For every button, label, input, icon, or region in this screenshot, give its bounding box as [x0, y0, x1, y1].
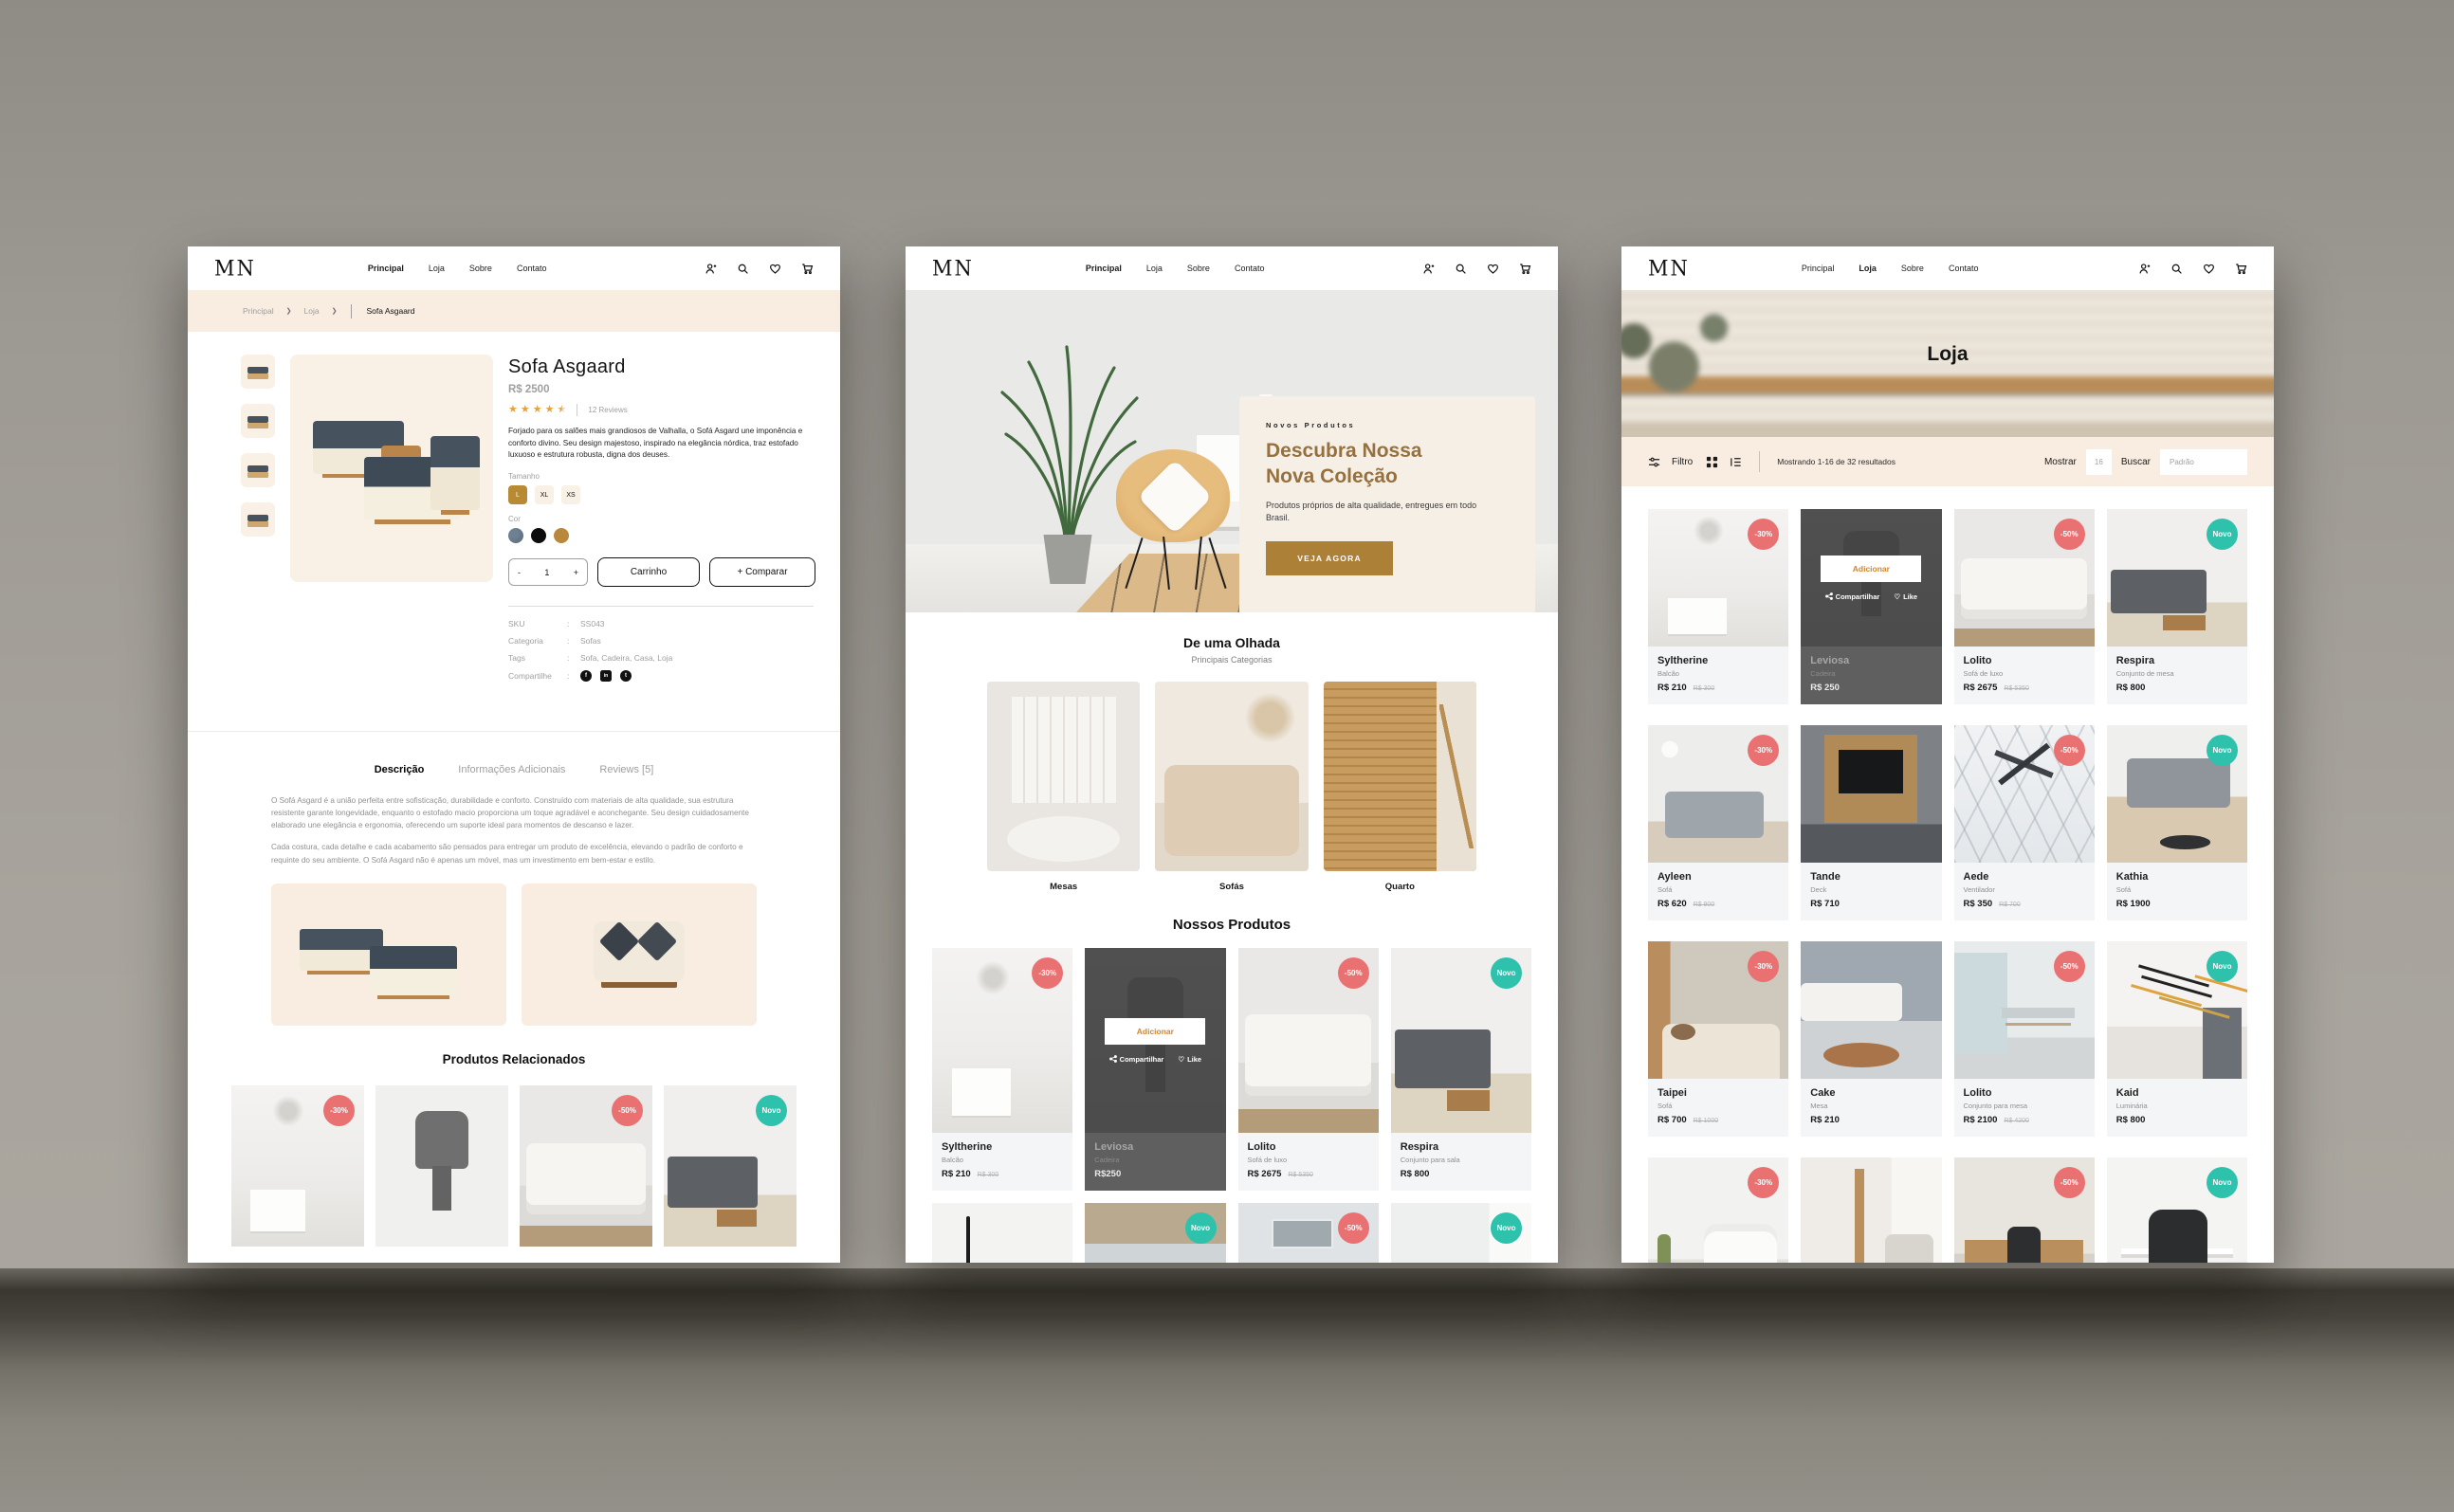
discount-badge: -50% — [1338, 957, 1369, 989]
category-quarto[interactable]: Quarto — [1324, 682, 1476, 892]
product-name: Cake — [1810, 1087, 1932, 1099]
chevron-icon: ❯ — [332, 307, 338, 315]
search-icon[interactable] — [737, 263, 749, 275]
related-product-1[interactable]: -30% — [231, 1085, 364, 1247]
main-nav: Principal Loja Sobre Contato — [368, 264, 547, 273]
product-name: Leviosa — [1094, 1141, 1216, 1153]
product-card[interactable]: Novo — [1391, 1203, 1531, 1263]
main-nav: Principal Loja Sobre Contato — [1086, 264, 1265, 273]
purchase-actions: - 1 + Carrinho + Comparar — [508, 557, 815, 587]
discount-badge: -30% — [1748, 735, 1779, 766]
grid-view-icon[interactable] — [1706, 456, 1718, 468]
product-old-price: R$ 1000 — [1694, 1118, 1718, 1124]
section-divider — [188, 731, 840, 732]
discount-badge: -50% — [2054, 519, 2085, 550]
account-icon[interactable] — [1422, 263, 1435, 275]
product-category: Sofá — [2116, 885, 2238, 894]
product-category: Luminária — [2116, 1102, 2238, 1110]
tab-informacoes[interactable]: Informações Adicionais — [458, 764, 565, 775]
category-image — [1155, 682, 1308, 871]
product-category: Sofá de luxo — [1964, 669, 2085, 678]
toolbar-divider — [1759, 451, 1760, 472]
product-image: Novo — [1391, 1203, 1531, 1263]
product-name: Respira — [1401, 1141, 1522, 1153]
product-card-hovered[interactable]: Adicionar Compartilhar ♡Like Leviosa Cad… — [1085, 948, 1225, 1191]
home-page: MN Principal Loja Sobre Contato — [906, 246, 1558, 1263]
product-detail-page: MN Principal Loja Sobre Contato Principa… — [188, 246, 840, 1263]
heart-icon: ♡ — [1178, 1055, 1184, 1064]
twitter-icon[interactable]: t — [620, 670, 632, 682]
new-badge: Novo — [2207, 519, 2238, 550]
product-image: -50% — [1954, 941, 2095, 1079]
share-label: Compartilhe — [508, 671, 567, 681]
product-card[interactable]: -30% Syltherine Balcão R$ 210 R$ 300 — [1648, 509, 1788, 704]
tags-label: Tags — [508, 653, 567, 663]
size-option-l[interactable]: L — [508, 485, 527, 504]
color-swatch-tan[interactable] — [554, 528, 569, 543]
discount-badge: -50% — [2054, 735, 2085, 766]
product-title: Sofa Asgaard — [508, 356, 815, 378]
site-header: MN Principal Loja Sobre Contato — [1621, 246, 2274, 290]
discount-badge: -50% — [2054, 1167, 2085, 1198]
product-price: R$ 620 — [1657, 899, 1687, 909]
discount-badge: -30% — [1748, 1167, 1779, 1198]
size-label: Tamanho — [508, 472, 815, 481]
product-meta: SKU : SS043 Categoria : Sofas Tags : Sof… — [508, 619, 815, 682]
home-product-grid-partial: Novo -50% Novo — [932, 1203, 1531, 1263]
main-nav: Principal Loja Sobre Contato — [1802, 264, 1979, 273]
product-card[interactable]: Novo Respira Conjunto de mesa R$ 800 — [2107, 509, 2247, 704]
discount-badge: -30% — [1032, 957, 1063, 989]
product-old-price: R$ 4200 — [2004, 1118, 2028, 1124]
like-action[interactable]: ♡Like — [1894, 592, 1917, 601]
product-old-price: R$ 5350 — [2004, 685, 2028, 692]
product-price: R$ 710 — [1810, 899, 1840, 909]
products-title: Nossos Produtos — [906, 917, 1558, 933]
list-view-icon[interactable] — [1730, 456, 1742, 468]
hero-cta-button[interactable]: VEJA AGORA — [1266, 541, 1393, 575]
sku-label: SKU — [508, 619, 567, 628]
related-product-3[interactable]: -50% — [520, 1085, 652, 1247]
shop-product-grid-partial: -30% -50% Novo — [1648, 1157, 2247, 1263]
category-label: Sofás — [1155, 882, 1308, 892]
tags-value[interactable]: Sofa, Cadeira, Casa, Loja — [580, 653, 672, 663]
product-image: -50% — [1954, 725, 2095, 863]
product-old-price: R$ 300 — [1694, 685, 1715, 692]
product-image — [1801, 1157, 1941, 1263]
breadcrumb-home[interactable]: Principal — [243, 306, 274, 316]
product-card[interactable]: Novo — [1085, 1203, 1225, 1263]
rattan-chair-graphic — [1116, 449, 1230, 592]
size-option-xs[interactable]: XS — [561, 485, 580, 504]
wishlist-heart-icon[interactable] — [769, 263, 781, 275]
thumbnail-3[interactable] — [241, 453, 275, 487]
product-name: Respira — [2116, 655, 2238, 666]
wishlist-heart-icon[interactable] — [2203, 263, 2215, 275]
nav-contato[interactable]: Contato — [517, 264, 547, 273]
new-badge: Novo — [756, 1095, 787, 1126]
product-category: Conjunto para sala — [1401, 1156, 1522, 1164]
like-action[interactable]: ♡Like — [1178, 1055, 1201, 1064]
discount-badge: -50% — [1338, 1212, 1369, 1244]
star-icon: ★ — [533, 405, 542, 415]
account-icon[interactable] — [2138, 263, 2151, 275]
header-icons — [2138, 263, 2247, 275]
compare-button[interactable]: + Comparar — [709, 557, 815, 587]
thumbnail-2[interactable] — [241, 404, 275, 438]
info-divider — [508, 606, 814, 607]
category-label: Categoria — [508, 636, 567, 646]
new-badge: Novo — [1491, 1212, 1522, 1244]
product-card[interactable]: -30% Syltherine Balcão R$ 210 R$ 300 — [932, 948, 1072, 1191]
color-swatch-blue[interactable] — [508, 528, 523, 543]
product-card[interactable] — [1801, 1157, 1941, 1263]
shop-product-grid: -30% Syltherine Balcão R$ 210 R$ 300 Adi… — [1648, 509, 2247, 1137]
brand-logo[interactable]: MN — [1648, 256, 1690, 280]
product-category: Balcão — [942, 1156, 1063, 1164]
rating-divider — [577, 404, 577, 416]
share-action[interactable]: Compartilhar — [1109, 1055, 1164, 1064]
scene-floor — [0, 1268, 2454, 1512]
product-category: Sofá — [1657, 1102, 1779, 1110]
linkedin-icon[interactable]: in — [600, 670, 612, 682]
product-card[interactable]: Novo Kathia Sofá R$ 1900 — [2107, 725, 2247, 920]
hero-banner: Novos Produtos Descubra Nossa Nova Coleç… — [906, 290, 1558, 612]
product-card[interactable]: -30% Ayleen Sofá R$ 620 R$ 900 — [1648, 725, 1788, 920]
sort-label: Buscar — [2121, 457, 2151, 467]
product-card[interactable]: -30% Taipei Sofá R$ 700 R$ 1000 — [1648, 941, 1788, 1137]
nav-contato[interactable]: Contato — [1949, 264, 1979, 273]
product-image: -50% — [1954, 509, 2095, 647]
quantity-minus[interactable]: - — [518, 568, 521, 577]
star-icon: ★ — [545, 405, 555, 415]
product-card[interactable]: Novo Respira Conjunto para sala R$ 800 — [1391, 948, 1531, 1191]
product-image: Novo — [1085, 1203, 1225, 1263]
product-price: R$ 250 — [1810, 683, 1840, 693]
heart-icon: ♡ — [1894, 592, 1900, 601]
product-image: -30% — [1648, 725, 1788, 863]
product-image: Novo — [2107, 725, 2247, 863]
product-card[interactable]: Tande Deck R$ 710 — [1801, 725, 1941, 920]
add-to-cart-button[interactable]: Adicionar — [1821, 556, 1921, 582]
brand-logo[interactable]: MN — [214, 256, 256, 280]
product-price: R$ 2675 — [1964, 683, 1998, 693]
product-info: Sofa Asgaard R$ 2500 ★ ★ ★ ★ ★ 12 Review… — [508, 355, 815, 689]
product-image: -50% — [1954, 1157, 2095, 1263]
nav-loja[interactable]: Loja — [1146, 264, 1163, 273]
size-option-xl[interactable]: XL — [535, 485, 554, 504]
quantity-stepper[interactable]: - 1 + — [508, 558, 588, 586]
facebook-icon[interactable]: f — [580, 670, 592, 682]
product-price: R$ 800 — [1401, 1169, 1430, 1179]
category-label: Quarto — [1324, 882, 1476, 892]
discount-badge: -30% — [323, 1095, 355, 1126]
product-category: Conjunto de mesa — [2116, 669, 2238, 678]
header-icons — [705, 263, 814, 275]
show-count-input[interactable]: 16 — [2086, 449, 2112, 475]
product-image — [1801, 941, 1941, 1079]
breadcrumb-current: Sofa Asgaard — [366, 306, 414, 316]
add-to-cart-button[interactable]: Carrinho — [597, 557, 700, 587]
new-badge: Novo — [2207, 1167, 2238, 1198]
shop-hero-banner: Loja — [1621, 290, 2274, 437]
new-badge: Novo — [2207, 951, 2238, 982]
breadcrumb-divider — [351, 304, 352, 319]
site-header: MN Principal Loja Sobre Contato — [906, 246, 1558, 290]
mockup-scene: MN Principal Loja Sobre Contato Principa… — [0, 0, 2454, 1512]
cart-icon[interactable] — [2235, 263, 2247, 275]
glance-section-header: De uma Olhada Principais Categorias — [906, 635, 1558, 665]
discount-badge: -50% — [612, 1095, 643, 1126]
product-image: Novo — [2107, 941, 2247, 1079]
description-body: O Sofá Asgard é a união perfeita entre s… — [271, 794, 757, 866]
product-category: Cadeira — [1094, 1156, 1216, 1164]
product-image: Adicionar Compartilhar ♡Like — [1801, 509, 1941, 647]
shop-page: MN Principal Loja Sobre Contato Loja Fil… — [1621, 246, 2274, 1263]
thumbnail-1[interactable] — [241, 355, 275, 389]
category-sofas[interactable]: Sofás — [1155, 682, 1308, 892]
product-name: Aede — [1964, 871, 2085, 883]
description-paragraph: O Sofá Asgard é a união perfeita entre s… — [271, 794, 757, 831]
star-icon: ★ — [521, 405, 530, 415]
product-price: R$ 700 — [1657, 1115, 1687, 1125]
product-card[interactable]: -50% Lolito Conjunto para mesa R$ 2100 R… — [1954, 941, 2095, 1137]
product-card[interactable]: -50% Lolito Sofá de luxo R$ 2675 R$ 5350 — [1238, 948, 1379, 1191]
product-category: Cadeira — [1810, 669, 1932, 678]
product-category: Sofá de luxo — [1248, 1156, 1369, 1164]
nav-sobre[interactable]: Sobre — [469, 264, 492, 273]
product-name: Leviosa — [1810, 655, 1932, 666]
cart-icon[interactable] — [801, 263, 814, 275]
product-price: R$ 2675 — [1248, 1169, 1282, 1179]
product-price: R$ 800 — [2116, 1115, 2146, 1125]
breadcrumb: Principal ❯ Loja ❯ Sofa Asgaard — [188, 290, 840, 332]
detail-tabs: Descrição Informações Adicionais Reviews… — [188, 764, 840, 775]
product-card[interactable]: Novo Kaid Luminária R$ 800 — [2107, 941, 2247, 1137]
hero-card: Novos Produtos Descubra Nossa Nova Coleç… — [1239, 396, 1535, 612]
product-image — [932, 1203, 1072, 1263]
product-price: R$ 2100 — [1964, 1115, 1998, 1125]
glance-subtitle: Principais Categorias — [906, 655, 1558, 665]
shop-toolbar: Filtro Mostrando 1-16 de 32 resultados M… — [1621, 437, 2274, 486]
new-badge: Novo — [2207, 735, 2238, 766]
category-label: Mesas — [987, 882, 1140, 892]
description-images — [271, 884, 757, 1026]
hero-title: Descubra Nossa Nova Coleção — [1266, 438, 1509, 490]
product-summary: Forjado para os salões mais grandiosos d… — [508, 426, 814, 462]
hero-eyebrow: Novos Produtos — [1266, 421, 1509, 429]
product-card[interactable]: Cake Mesa R$ 210 — [1801, 941, 1941, 1137]
product-main-image — [290, 355, 493, 582]
product-card[interactable]: Novo — [2107, 1157, 2247, 1263]
discount-badge: -50% — [2054, 951, 2085, 982]
nav-sobre[interactable]: Sobre — [1901, 264, 1924, 273]
product-card[interactable]: -50% — [1954, 1157, 2095, 1263]
size-options: L XL XS — [508, 485, 815, 504]
product-section: Sofa Asgaard R$ 2500 ★ ★ ★ ★ ★ 12 Review… — [188, 332, 840, 689]
product-image: Novo — [1391, 948, 1531, 1133]
product-price: R$ 210 — [1810, 1115, 1840, 1125]
nav-sobre[interactable]: Sobre — [1187, 264, 1210, 273]
product-category: Sofá — [1657, 885, 1779, 894]
hero-text: Produtos próprios de alta qualidade, ent… — [1266, 500, 1493, 525]
hover-overlay: Adicionar Compartilhar ♡Like — [1085, 948, 1225, 1133]
sort-select[interactable]: Padrão — [2160, 449, 2247, 475]
product-old-price: R$ 700 — [1999, 902, 2021, 908]
product-category: Ventilador — [1964, 885, 2085, 894]
product-old-price: R$ 5350 — [1288, 1172, 1312, 1178]
product-price: R$ 800 — [2116, 683, 2146, 693]
breadcrumb-shop[interactable]: Loja — [303, 306, 319, 316]
half-star-icon: ★ — [558, 405, 567, 415]
product-price: R$ 210 — [1657, 683, 1687, 693]
related-product-2[interactable] — [375, 1085, 508, 1247]
product-image: -50% — [1238, 1203, 1379, 1263]
category-row: Mesas Sofás Quarto — [987, 682, 1476, 892]
nav-principal[interactable]: Principal — [1802, 264, 1835, 273]
thumbnail-list — [241, 355, 275, 689]
product-price: R$ 2500 — [508, 384, 815, 395]
product-card[interactable]: -50% Aede Ventilador R$ 350 R$ 700 — [1954, 725, 2095, 920]
discount-badge: -30% — [1748, 951, 1779, 982]
thumbnail-4[interactable] — [241, 502, 275, 537]
product-category: Deck — [1810, 885, 1932, 894]
search-icon[interactable] — [1455, 263, 1467, 275]
new-badge: Novo — [1185, 1212, 1217, 1244]
color-swatch-black[interactable] — [531, 528, 546, 543]
description-image-sofa-set — [271, 884, 506, 1026]
product-name: Lolito — [1964, 1087, 2085, 1099]
product-price: R$ 350 — [1964, 899, 1993, 909]
product-name: Kathia — [2116, 871, 2238, 883]
review-count[interactable]: 12 Reviews — [588, 406, 627, 414]
product-name: Ayleen — [1657, 871, 1779, 883]
product-image: -30% — [1648, 509, 1788, 647]
description-paragraph: Cada costura, cada detalhe e cada acabam… — [271, 841, 757, 865]
category-mesas[interactable]: Mesas — [987, 682, 1140, 892]
product-image: Novo — [2107, 509, 2247, 647]
tab-reviews[interactable]: Reviews [5] — [599, 764, 653, 775]
products-section-header: Nossos Produtos — [906, 917, 1558, 933]
product-image — [1801, 725, 1941, 863]
product-card[interactable] — [932, 1203, 1072, 1263]
show-label: Mostrar — [2044, 457, 2077, 467]
rating: ★ ★ ★ ★ ★ 12 Reviews — [508, 404, 815, 416]
product-old-price: R$ 900 — [1694, 902, 1715, 908]
shop-page-title: Loja — [1621, 290, 2274, 366]
site-header: MN Principal Loja Sobre Contato — [188, 246, 840, 290]
cart-icon[interactable] — [1519, 263, 1531, 275]
product-image: Novo — [2107, 1157, 2247, 1263]
discount-badge: -30% — [1748, 519, 1779, 550]
account-icon[interactable] — [705, 263, 717, 275]
product-price: R$250 — [1094, 1169, 1121, 1179]
search-icon[interactable] — [2170, 263, 2183, 275]
product-image: -50% — [1238, 948, 1379, 1133]
chevron-icon: ❯ — [286, 307, 292, 315]
star-icon: ★ — [508, 405, 518, 415]
filter-label[interactable]: Filtro — [1672, 457, 1693, 467]
product-card[interactable]: -50% — [1238, 1203, 1379, 1263]
product-price: R$ 1900 — [2116, 899, 2151, 909]
related-products: Produtos Relacionados -30% -50% Novo — [188, 1052, 840, 1247]
product-name: Kaid — [2116, 1087, 2238, 1099]
product-name: Lolito — [1964, 655, 2085, 666]
product-old-price: R$ 300 — [978, 1172, 999, 1178]
product-category: Conjunto para mesa — [1964, 1102, 2085, 1110]
category-image — [1324, 682, 1476, 871]
glance-title: De uma Olhada — [906, 635, 1558, 650]
product-category: Balcão — [1657, 669, 1779, 678]
quantity-value: 1 — [544, 568, 549, 577]
description-image-armchair — [522, 884, 757, 1026]
product-card[interactable]: -50% Lolito Sofá de luxo R$ 2675 R$ 5350 — [1954, 509, 2095, 704]
share-action[interactable]: Compartilhar — [1825, 592, 1880, 601]
nav-loja[interactable]: Loja — [429, 264, 445, 273]
product-image: -30% — [932, 948, 1072, 1133]
product-image: Adicionar Compartilhar ♡Like — [1085, 948, 1225, 1133]
sku-value: SS043 — [580, 619, 605, 628]
nav-principal[interactable]: Principal — [1086, 264, 1122, 273]
related-title: Produtos Relacionados — [188, 1052, 840, 1066]
product-card[interactable]: -30% — [1648, 1157, 1788, 1263]
nav-contato[interactable]: Contato — [1235, 264, 1265, 273]
category-image — [987, 682, 1140, 871]
add-to-cart-button[interactable]: Adicionar — [1105, 1018, 1205, 1045]
product-image: -30% — [1648, 1157, 1788, 1263]
product-name: Taipei — [1657, 1087, 1779, 1099]
home-product-grid: -30% Syltherine Balcão R$ 210 R$ 300 Adi… — [932, 948, 1531, 1191]
filter-icon[interactable] — [1648, 456, 1660, 468]
product-name: Tande — [1810, 871, 1932, 883]
header-icons — [1422, 263, 1531, 275]
quantity-plus[interactable]: + — [574, 568, 578, 577]
hover-overlay: Adicionar Compartilhar ♡Like — [1801, 509, 1941, 647]
results-count: Mostrando 1-16 de 32 resultados — [1777, 457, 1895, 466]
related-product-4[interactable]: Novo — [664, 1085, 797, 1247]
brand-logo[interactable]: MN — [932, 256, 974, 280]
new-badge: Novo — [1491, 957, 1522, 989]
product-name: Lolito — [1248, 1141, 1369, 1153]
nav-principal[interactable]: Principal — [368, 264, 404, 273]
color-options — [508, 528, 815, 543]
product-category: Mesa — [1810, 1102, 1932, 1110]
product-image: -30% — [1648, 941, 1788, 1079]
color-label: Cor — [508, 515, 815, 523]
product-name: Syltherine — [1657, 655, 1779, 666]
nav-loja[interactable]: Loja — [1859, 264, 1877, 273]
product-name: Syltherine — [942, 1141, 1063, 1153]
product-card-hovered[interactable]: Adicionar Compartilhar ♡Like Leviosa Cad… — [1801, 509, 1941, 704]
wishlist-heart-icon[interactable] — [1487, 263, 1499, 275]
tab-descricao[interactable]: Descrição — [375, 764, 425, 775]
product-price: R$ 210 — [942, 1169, 971, 1179]
category-value[interactable]: Sofas — [580, 636, 601, 646]
